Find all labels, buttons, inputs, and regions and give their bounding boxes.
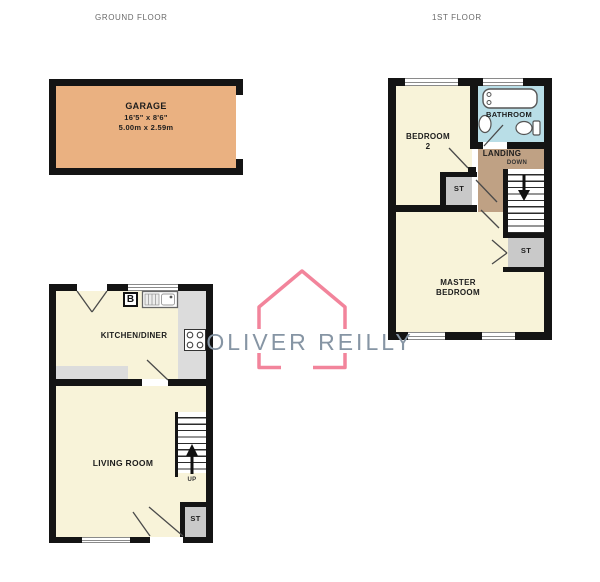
kitchen-window xyxy=(128,284,178,291)
kitchen-living-wall-left xyxy=(56,379,142,386)
stairs-down-side-wall xyxy=(503,169,508,233)
stairs-up-label: UP xyxy=(182,477,202,485)
bathroom-window xyxy=(483,78,523,86)
entrance-door-opening xyxy=(150,537,183,543)
kitchen-counter-bottom xyxy=(56,366,128,379)
garage-label: GARAGE xyxy=(86,101,206,112)
bathroom-label: BATHROOM xyxy=(470,110,548,119)
stairs-down xyxy=(508,169,544,233)
bedroom2-label-line1: BEDROOM xyxy=(388,132,468,142)
store2-wall-bottom xyxy=(503,267,544,272)
kitchen-living-wall-right xyxy=(168,379,206,386)
garage-dims-imperial: 16'5" x 8'6" xyxy=(86,113,206,122)
master-bedroom-label: MASTER BEDROOM xyxy=(408,278,508,298)
bathroom-door-opening xyxy=(483,142,507,149)
garage-door-stub-bottom xyxy=(236,159,243,175)
master-window-right xyxy=(482,332,515,340)
stairs-down-label: DOWN xyxy=(502,160,532,168)
garage-door-stub-top xyxy=(236,79,243,95)
ground-wall-left xyxy=(49,284,56,543)
floorplan-canvas: GROUND FLOOR 1ST FLOOR GARAGE 16'5" x 8'… xyxy=(0,0,600,582)
store2-wall-top xyxy=(503,233,544,238)
bedroom2-label: BEDROOM 2 xyxy=(388,132,468,152)
garage-wall-left xyxy=(49,79,56,175)
garage-wall-bottom xyxy=(49,168,243,175)
ground-floor-title: GROUND FLOOR xyxy=(95,13,168,22)
landing-label: LANDING xyxy=(462,149,542,159)
living-room-window xyxy=(82,537,130,543)
bedroom2-label-line2: 2 xyxy=(388,142,468,152)
bedroom2-wall-stub xyxy=(468,167,476,177)
master-label-line2: BEDROOM xyxy=(408,288,508,298)
living-room-label: LIVING ROOM xyxy=(63,458,183,469)
ground-wall-bottom xyxy=(49,537,213,543)
garage-dims-metric: 5.00m x 2.59m xyxy=(86,123,206,132)
kitchen-door-opening xyxy=(77,284,107,291)
first-wall-left xyxy=(388,78,396,340)
master-wall-top xyxy=(388,205,477,212)
store1-label: ST xyxy=(446,184,472,193)
watermark-logo-text: OLIVER REILLY xyxy=(160,329,460,356)
bedroom2-window xyxy=(405,78,458,86)
first-floor-title: 1ST FLOOR xyxy=(432,13,482,22)
garage-wall-top xyxy=(49,79,243,86)
store-ground-label: ST xyxy=(185,514,206,523)
ground-wall-right xyxy=(206,284,213,543)
boiler-icon: B xyxy=(123,292,138,307)
master-label-line1: MASTER xyxy=(408,278,508,288)
store2-label: ST xyxy=(508,246,544,255)
